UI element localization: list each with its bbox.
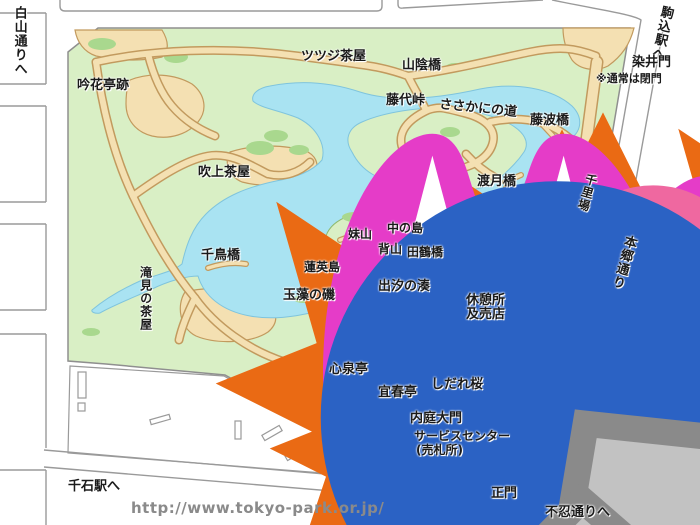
park-guide-map: AED N 白山通りへ駒込駅へ本郷通り千里場千石駅へ不忍通りへhttp://ww… <box>0 0 700 525</box>
map-canvas: AED N <box>0 0 700 525</box>
